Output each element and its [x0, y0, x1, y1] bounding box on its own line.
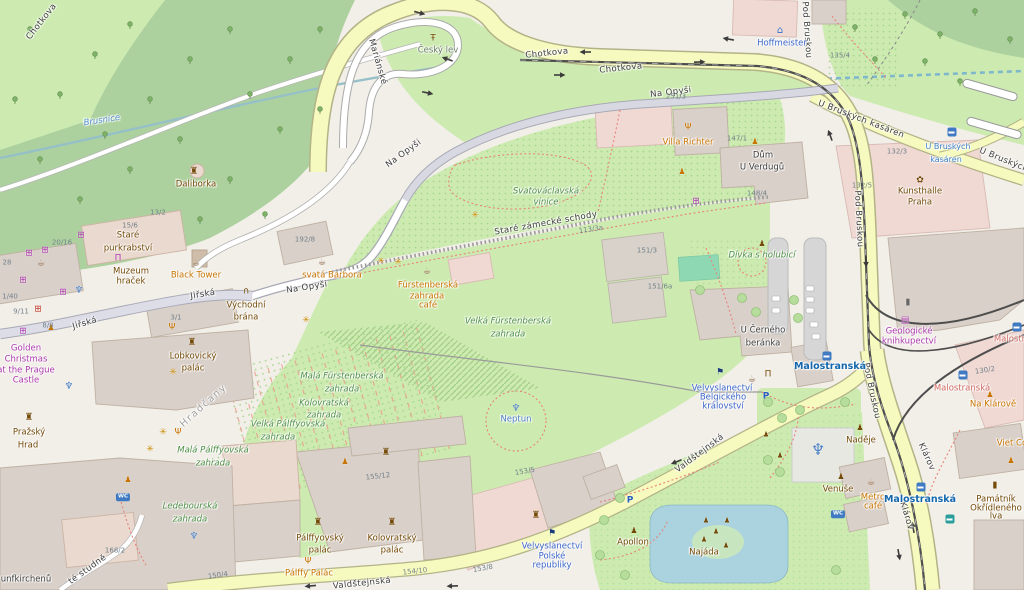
map-base-layer — [0, 0, 1024, 590]
map-canvas[interactable]: ✳✳✳✳✳✳✳♜♜♜♜♜♜♜♟♟♟♟♟♟♟♟♟♟♟♆♆♆♆♆☕☕☕☕☕☕ΨΨΨΨ… — [0, 0, 1024, 590]
